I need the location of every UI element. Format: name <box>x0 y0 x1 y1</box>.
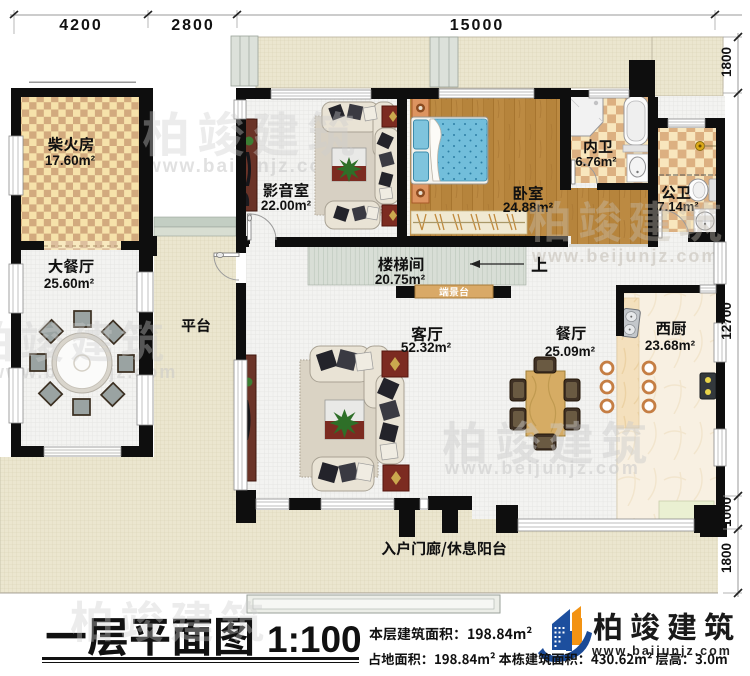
svg-text:17.60m²: 17.60m² <box>45 153 96 168</box>
svg-text:24.88m²: 24.88m² <box>503 200 554 215</box>
svg-text:1:100: 1:100 <box>267 619 362 660</box>
svg-text:1000: 1000 <box>719 497 734 527</box>
svg-text:6.76m²: 6.76m² <box>575 154 617 169</box>
svg-text:52.32m²: 52.32m² <box>401 340 452 355</box>
svg-text:15000: 15000 <box>450 17 505 34</box>
svg-text:25.09m²: 25.09m² <box>545 344 596 359</box>
svg-text:25.60m²: 25.60m² <box>44 276 95 291</box>
svg-text:www.beijunjz.com: www.beijunjz.com <box>531 246 719 266</box>
svg-text:20.75m²: 20.75m² <box>375 272 426 287</box>
svg-text:1800: 1800 <box>719 543 734 573</box>
svg-text:12700: 12700 <box>719 302 734 340</box>
svg-text:22.00m²: 22.00m² <box>261 198 312 213</box>
svg-text:4200: 4200 <box>59 17 103 34</box>
svg-text:23.68m²: 23.68m² <box>645 338 696 353</box>
svg-text:1800: 1800 <box>719 47 734 77</box>
svg-text:2800: 2800 <box>171 17 215 34</box>
